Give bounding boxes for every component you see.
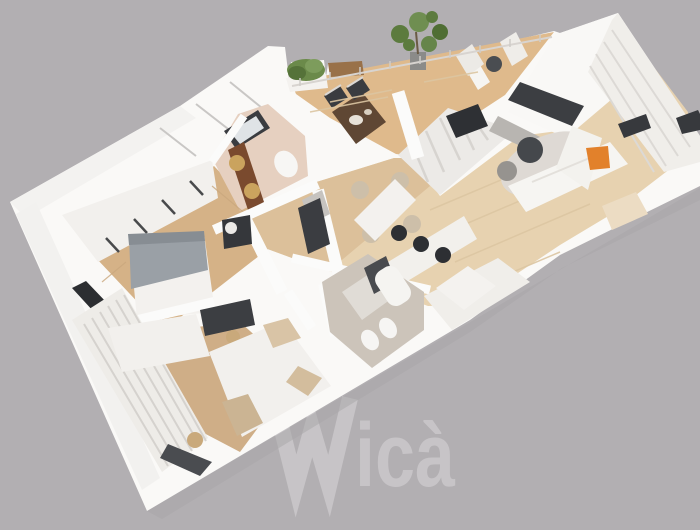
- svg-text:icà: icà: [355, 406, 456, 506]
